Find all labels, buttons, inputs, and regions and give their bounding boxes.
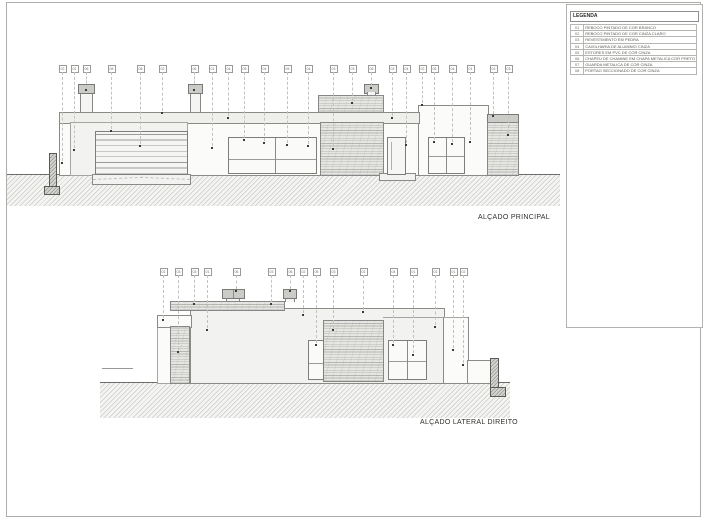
callout-leader-line <box>212 72 213 146</box>
elevation-title: ALÇADO LATERAL DIREITO <box>420 419 518 426</box>
window-mullion <box>446 138 447 173</box>
callout-leader-line <box>162 72 163 111</box>
garage-sectional-door <box>95 131 188 175</box>
stone-parapet-band <box>170 301 285 311</box>
legend-panel: LEGENDA 01REBOCO PINTADO DE COR BRANCO02… <box>566 4 703 328</box>
legend-code: 08 <box>571 68 584 74</box>
callout-leader-line <box>453 275 454 348</box>
callout-leader-line <box>333 72 334 147</box>
callout-end-dot <box>332 148 334 150</box>
shutter-pane <box>229 138 316 160</box>
callout-leader-line <box>244 72 245 138</box>
callout-end-dot <box>73 149 75 151</box>
callout-leader-line <box>62 72 63 161</box>
callout-leader-line <box>406 72 407 143</box>
callout-end-dot <box>302 314 304 316</box>
right-wing-wall <box>443 317 469 384</box>
legend-row: 06CHAPEU DE CHAMINE EM CHAPA METALICA CO… <box>571 55 697 61</box>
callout-leader-line <box>111 72 112 129</box>
callout-end-dot <box>61 162 63 164</box>
callout-end-dot <box>110 130 112 132</box>
callout-end-dot <box>193 89 195 91</box>
callout-end-dot <box>162 319 164 321</box>
gate-pillar-base <box>44 186 60 195</box>
low-wall <box>467 360 492 384</box>
callout-end-dot <box>85 89 87 91</box>
callout-end-dot <box>370 87 372 89</box>
callout-leader-line <box>271 275 272 302</box>
callout-leader-line <box>140 72 141 144</box>
callout-end-dot <box>452 349 454 351</box>
legend-title-box: LEGENDA <box>570 11 699 22</box>
callout-leader-line <box>308 72 309 144</box>
chimney-stack <box>190 92 201 113</box>
callout-leader-line <box>371 72 372 86</box>
callout-leader-line <box>236 275 237 289</box>
gate-pillar-post <box>49 153 57 189</box>
callout-leader-line <box>194 275 195 302</box>
callout-end-dot <box>462 364 464 366</box>
callout-leader-line <box>434 72 435 140</box>
chimney-cap <box>222 289 245 299</box>
callout-end-dot <box>421 104 423 106</box>
callout-leader-line <box>470 72 471 140</box>
window-narrow <box>308 340 324 380</box>
callout-leader-line <box>413 275 414 353</box>
callout-leader-line <box>74 72 75 148</box>
callout-end-dot <box>270 303 272 305</box>
callout-end-dot <box>433 141 435 143</box>
gate-pillar-base <box>490 387 506 397</box>
callout-leader-line <box>352 72 353 101</box>
callout-end-dot <box>243 139 245 141</box>
window-band <box>228 137 317 174</box>
callout-end-dot <box>405 144 407 146</box>
callout-end-dot <box>307 145 309 147</box>
callout-end-dot <box>412 354 414 356</box>
callout-leader-line <box>207 275 208 328</box>
chimney-stack <box>80 92 93 113</box>
callout-end-dot <box>492 115 494 117</box>
window-mullion <box>275 138 276 173</box>
callout-leader-line <box>452 72 453 142</box>
callout-end-dot <box>507 134 509 136</box>
callout-end-dot <box>161 112 163 114</box>
callout-leader-line <box>508 72 509 133</box>
rear-roof-edge <box>383 317 467 318</box>
chimney-cap <box>188 84 203 94</box>
left-annex-stone-column <box>170 326 190 384</box>
cap-divider <box>233 290 234 298</box>
terrain-line <box>102 368 133 369</box>
drawing-sheet: 0201060808020601040504050403030602040205… <box>0 0 705 521</box>
callout-end-dot <box>139 145 141 147</box>
callout-leader-line <box>303 275 304 313</box>
callout-end-dot <box>332 329 334 331</box>
callout-leader-line <box>178 275 179 350</box>
apron-line <box>140 177 190 180</box>
callout-end-dot <box>235 290 237 292</box>
callout-leader-line <box>264 72 265 141</box>
callout-end-dot <box>315 344 317 346</box>
callout-leader-line <box>333 275 334 328</box>
callout-leader-line <box>392 72 393 116</box>
callout-leader-line <box>463 275 464 363</box>
chimney-stack <box>367 92 376 95</box>
legend-table: 01REBOCO PINTADO DE COR BRANCO02REBOCO P… <box>570 24 697 75</box>
apron-line <box>93 177 143 180</box>
callout-end-dot <box>434 326 436 328</box>
ground-hatch <box>7 174 560 206</box>
legend-row: 08PORTAO SECCIONADO DE COR CINZA <box>571 68 697 74</box>
callout-leader-line <box>228 72 229 116</box>
callout-leader-line <box>163 275 164 318</box>
door-handle-line <box>391 142 392 170</box>
callout-leader-line <box>86 72 87 88</box>
callout-end-dot <box>391 117 393 119</box>
callout-end-dot <box>263 142 265 144</box>
callout-leader-line <box>290 275 291 289</box>
callout-end-dot <box>362 311 364 313</box>
garage-apron <box>92 174 191 185</box>
callout-end-dot <box>351 102 353 104</box>
callout-end-dot <box>392 344 394 346</box>
callout-leader-line <box>422 72 423 103</box>
ground-hatch <box>100 382 510 418</box>
callout-end-dot <box>289 290 291 292</box>
callout-leader-line <box>393 275 394 343</box>
callout-end-dot <box>286 144 288 146</box>
elevation-title: ALÇADO PRINCIPAL <box>478 214 550 221</box>
stone-pillar-right <box>487 122 519 176</box>
callout-end-dot <box>193 303 195 305</box>
window-mullion <box>407 341 408 379</box>
callout-leader-line <box>493 72 494 114</box>
callout-leader-line <box>363 275 364 310</box>
callout-leader-line <box>194 72 195 88</box>
stone-wall-mid <box>320 122 384 176</box>
window-wide <box>388 340 427 380</box>
callout-end-dot <box>451 143 453 145</box>
legend-title: LEGENDA <box>571 12 698 21</box>
callout-leader-line <box>435 275 436 325</box>
entrance-door <box>387 137 406 175</box>
callout-leader-line <box>287 72 288 143</box>
callout-end-dot <box>177 351 179 353</box>
legend-description: CHAPEU DE CHAMINE EM CHAPA METALICA COR … <box>584 55 697 61</box>
callout-end-dot <box>227 117 229 119</box>
callout-end-dot <box>211 147 213 149</box>
callout-end-dot <box>469 141 471 143</box>
legend-description: PORTAO SECCIONADO DE COR CINZA <box>584 68 697 74</box>
callout-end-dot <box>206 329 208 331</box>
callout-leader-line <box>316 275 317 343</box>
